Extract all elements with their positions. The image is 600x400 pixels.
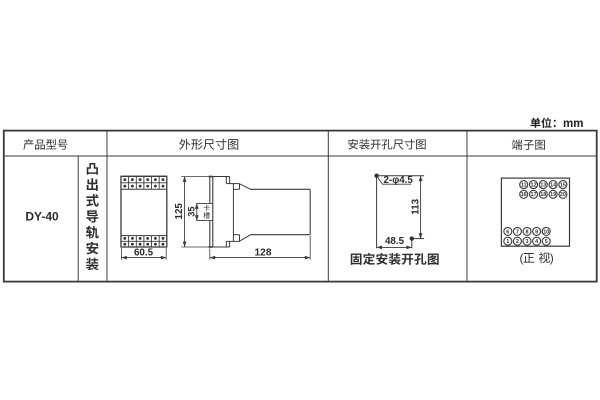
svg-text:7: 7 (516, 229, 519, 235)
svg-text:16: 16 (521, 192, 527, 198)
svg-text:18: 18 (540, 192, 546, 198)
svg-text:6: 6 (506, 229, 509, 235)
svg-text:14: 14 (550, 183, 556, 189)
svg-text:10: 10 (543, 229, 549, 235)
svg-text:60.5: 60.5 (134, 247, 154, 258)
svg-text:17: 17 (531, 192, 537, 198)
svg-text:35: 35 (186, 206, 196, 216)
svg-text:15: 15 (560, 183, 566, 189)
svg-text:128: 128 (255, 248, 272, 259)
svg-text:2: 2 (516, 239, 519, 245)
svg-text:48.5: 48.5 (385, 236, 405, 247)
svg-text:4: 4 (535, 239, 538, 245)
svg-text:5: 5 (545, 239, 548, 245)
svg-text:8: 8 (526, 229, 529, 235)
svg-text:1: 1 (506, 239, 509, 245)
svg-text:mm: mm (563, 118, 583, 130)
svg-text:(: ( (520, 251, 524, 265)
svg-text:125: 125 (174, 203, 185, 220)
svg-text:): ) (550, 251, 554, 265)
svg-text:12: 12 (531, 183, 537, 189)
svg-text:13: 13 (540, 183, 546, 189)
svg-text:113: 113 (411, 198, 422, 214)
svg-text:3: 3 (526, 239, 529, 245)
svg-text:20: 20 (560, 192, 566, 198)
svg-text:DY-40: DY-40 (25, 210, 59, 224)
svg-text:19: 19 (550, 192, 556, 198)
svg-text:2-φ4.5: 2-φ4.5 (384, 175, 414, 186)
svg-text:11: 11 (521, 183, 527, 189)
svg-text:9: 9 (535, 229, 538, 235)
